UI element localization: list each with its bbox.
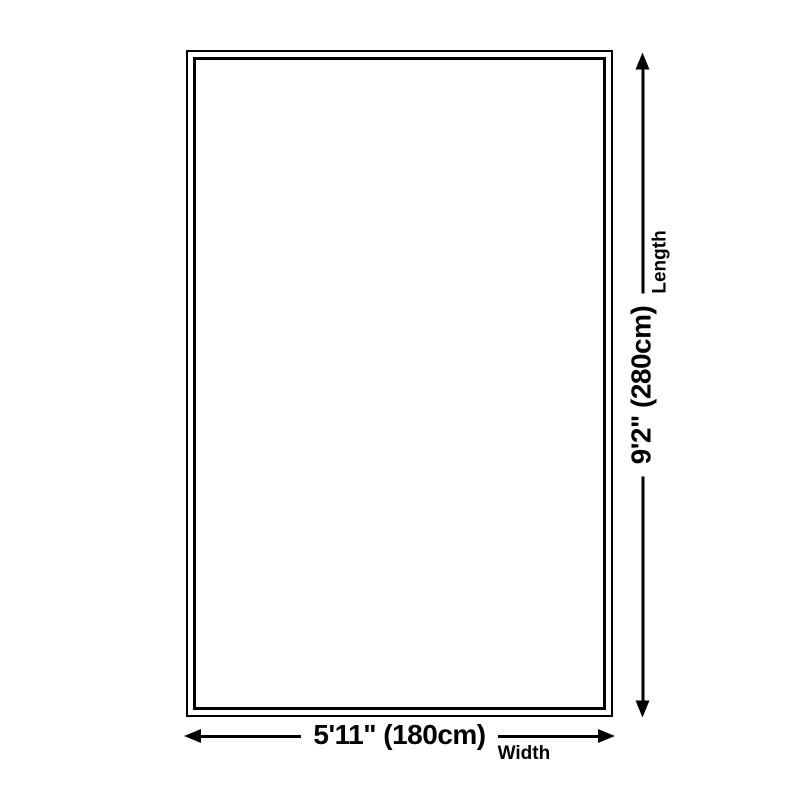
length-dimension-label: 9'2" (280cm) xyxy=(628,306,658,465)
dimension-diagram: 5'11" (180cm) Width 9'2" (280cm) Length xyxy=(0,0,800,800)
rug-outline xyxy=(186,50,613,717)
length-dimension-annotation: 9'2" (280cm) Length xyxy=(615,53,671,718)
arrowhead-up-icon xyxy=(636,52,650,69)
width-arrow-line-right xyxy=(498,735,598,738)
length-axis-name: Length xyxy=(651,230,670,293)
width-arrow-left-segment xyxy=(184,729,301,743)
arrowhead-right-icon xyxy=(598,729,615,743)
width-dimension-annotation: 5'11" (180cm) Width xyxy=(184,708,615,764)
length-arrow-line-bottom xyxy=(641,476,644,700)
length-arrow-line-top xyxy=(641,69,644,293)
width-arrow-right-segment: Width xyxy=(498,729,615,743)
length-arrow-top-segment: Length xyxy=(636,52,650,293)
length-arrow-bottom-segment xyxy=(636,476,650,717)
width-dimension-label: 5'11" (180cm) xyxy=(313,721,485,751)
width-arrow-line-left xyxy=(201,735,301,738)
arrowhead-down-icon xyxy=(636,701,650,718)
width-axis-name: Width xyxy=(498,744,551,763)
arrowhead-left-icon xyxy=(184,729,201,743)
rug-inner-border xyxy=(193,57,606,710)
